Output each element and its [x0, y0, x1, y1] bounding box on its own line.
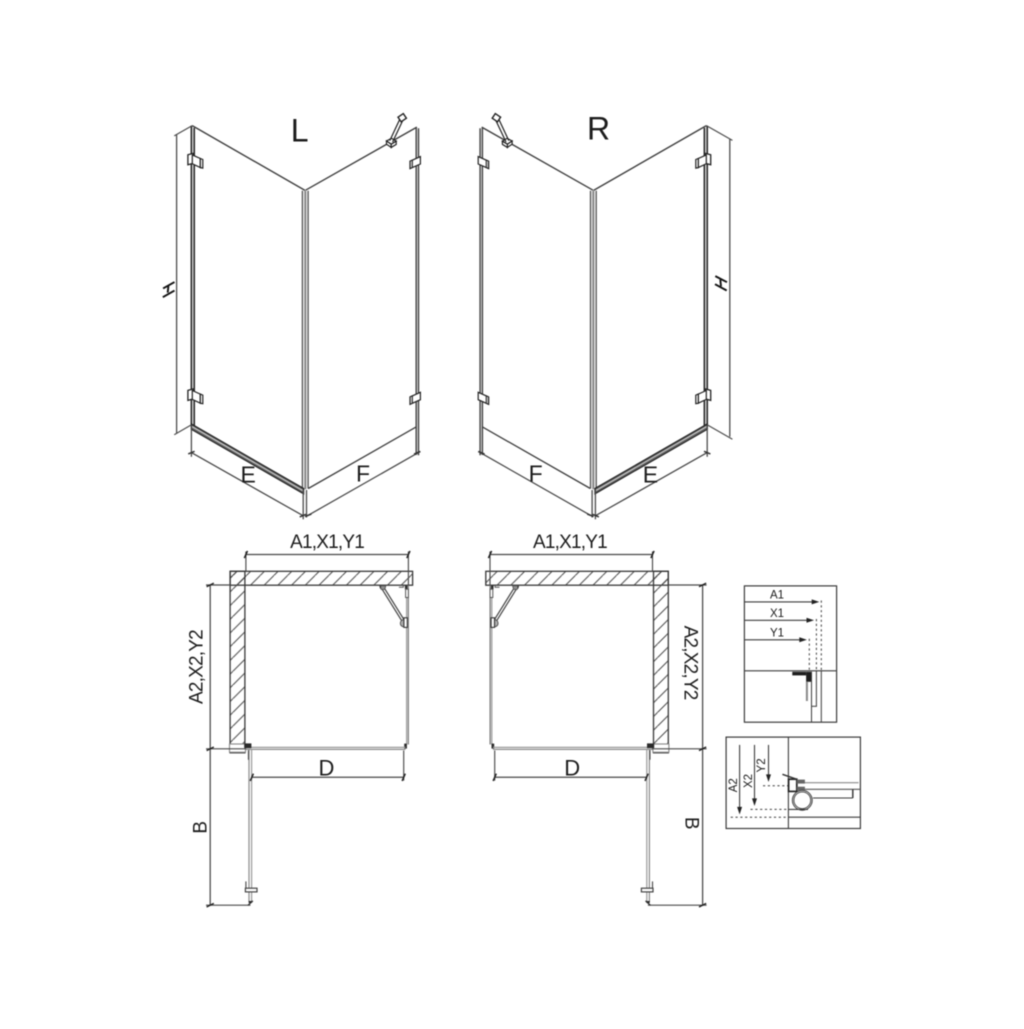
svg-text:L: L: [291, 113, 309, 149]
svg-text:B: B: [190, 821, 211, 834]
svg-text:F: F: [529, 460, 543, 486]
svg-text:R: R: [587, 111, 610, 147]
svg-text:A1: A1: [770, 590, 784, 602]
svg-text:E: E: [241, 461, 256, 487]
svg-text:A1,X1,Y1: A1,X1,Y1: [533, 532, 607, 553]
svg-text:D: D: [318, 755, 334, 780]
svg-text:X1: X1: [770, 608, 784, 620]
svg-text:F: F: [356, 460, 370, 486]
svg-text:A2,X2,Y2: A2,X2,Y2: [680, 626, 701, 700]
svg-text:E: E: [643, 461, 658, 487]
svg-text:A2: A2: [728, 778, 740, 792]
svg-text:X2: X2: [743, 774, 755, 788]
svg-text:Y1: Y1: [770, 628, 784, 640]
svg-text:A2,X2,Y2: A2,X2,Y2: [187, 630, 208, 704]
svg-text:B: B: [681, 817, 702, 830]
svg-text:D: D: [564, 755, 580, 780]
svg-text:Y2: Y2: [756, 758, 768, 772]
svg-text:A1,X1,Y1: A1,X1,Y1: [290, 532, 364, 553]
